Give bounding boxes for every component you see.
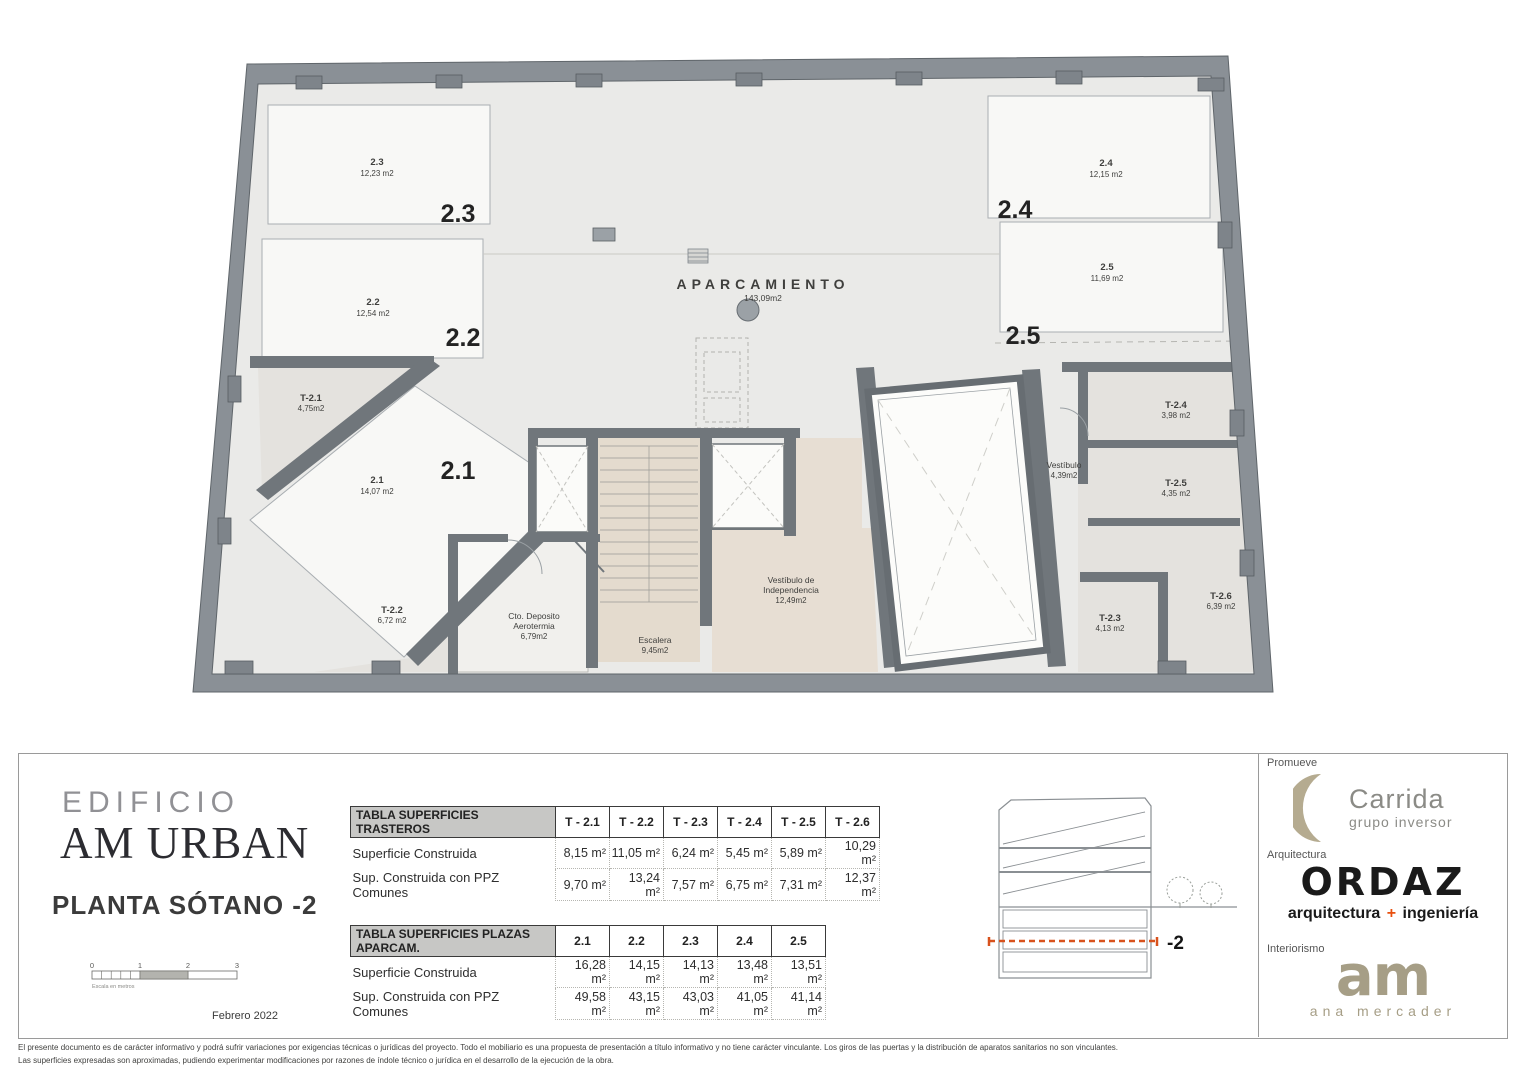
trastero-t25-area: 4,35 m2 [1162, 489, 1191, 498]
project-name-line1: EDIFICIO [62, 786, 240, 820]
level-line [989, 937, 1157, 946]
plus-icon: + [1385, 905, 1398, 922]
cell: 13,24 m² [610, 869, 664, 901]
col-header: 2.4 [718, 926, 772, 957]
credits-panel: Promueve Carrida grupo inversor Arquitec… [1258, 753, 1507, 1037]
space-2-2-id: 2.2 [366, 297, 379, 308]
table-title: TABLA SUPERFICIES PLAZAS APARCAM. [351, 926, 556, 957]
cell: 9,70 m² [556, 869, 610, 901]
trees-icon [1167, 877, 1222, 908]
cell: 7,57 m² [664, 869, 718, 901]
col-header: 2.1 [556, 926, 610, 957]
aparcamiento-area: 143,09m2 [744, 293, 782, 303]
trastero-t21-area: 4,75m2 [298, 404, 325, 413]
scale-tick-2: 2 [186, 961, 190, 970]
disclaimer-line2: Las superficies expresadas son aproximad… [18, 1055, 1510, 1067]
table-row: Sup. Construida con PPZ Comunes 49,58 m²… [351, 988, 826, 1020]
cell: 12,37 m² [826, 869, 880, 901]
col-header: T - 2.3 [664, 807, 718, 838]
table-title: TABLA SUPERFICIES TRASTEROS [351, 807, 556, 838]
date-label: Febrero 2022 [212, 1010, 278, 1022]
trastero-t25-id: T-2.5 [1165, 478, 1187, 489]
table-row: Superficie Construida 8,15 m² 11,05 m² 6… [351, 838, 880, 869]
ordaz-subtitle-pre: arquitectura [1288, 905, 1385, 922]
cell: 13,51 m² [772, 957, 826, 988]
trastero-t26-id: T-2.6 [1210, 591, 1232, 602]
space-2-5-area: 11,69 m2 [1091, 274, 1124, 283]
am-logo: am ana mercader [1259, 953, 1507, 1019]
hatched-column [688, 249, 708, 263]
table-superficies-trasteros: TABLA SUPERFICIES TRASTEROS T - 2.1 T - … [350, 806, 880, 901]
room-cto-area: 6,79m2 [521, 632, 548, 641]
scale-tick-3: 3 [235, 961, 239, 970]
table-header-row: TABLA SUPERFICIES PLAZAS APARCAM. 2.1 2.… [351, 926, 826, 957]
big-2-1: 2.1 [441, 457, 476, 485]
space-2-1-area: 14,07 m2 [360, 487, 394, 496]
col-header: 2.2 [610, 926, 664, 957]
space-2-2-area: 12,54 m2 [356, 309, 390, 318]
cell: 41,14 m² [772, 988, 826, 1020]
disclaimer-line1: El presente documento es de carácter inf… [18, 1042, 1510, 1054]
plan-title: PLANTA SÓTANO -2 [52, 890, 317, 921]
big-2-3: 2.3 [441, 200, 476, 228]
ordaz-name: ORDAZ [1259, 863, 1507, 901]
room-vestibulo: Vestíbulo [1047, 460, 1082, 470]
cell: 11,05 m² [610, 838, 664, 869]
row-label: Superficie Construida [351, 838, 556, 869]
col-header: T - 2.4 [718, 807, 772, 838]
scale-tick-1: 1 [138, 961, 142, 970]
section-building [999, 798, 1237, 978]
page: APARCAMIENTO 143,09m2 2.1 14,07 m2 2.2 1… [0, 0, 1525, 1080]
cell: 43,03 m² [664, 988, 718, 1020]
space-2-3-area: 12,23 m2 [360, 169, 394, 178]
big-2-4: 2.4 [998, 196, 1033, 224]
table-row: Superficie Construida 16,28 m² 14,15 m² … [351, 957, 826, 988]
carrida-crescent-icon [1293, 771, 1341, 845]
table-row: Sup. Construida con PPZ Comunes 9,70 m² … [351, 869, 880, 901]
role-promueve: Promueve [1267, 757, 1317, 769]
table-superficies-plazas: TABLA SUPERFICIES PLAZAS APARCAM. 2.1 2.… [350, 925, 826, 1020]
col-header: T - 2.6 [826, 807, 880, 838]
trastero-t26-area: 6,39 m2 [1207, 602, 1236, 611]
cell: 14,15 m² [610, 957, 664, 988]
ordaz-subtitle-post: ingeniería [1398, 905, 1478, 922]
scale-tick-0: 0 [90, 961, 94, 970]
col-header: T - 2.2 [610, 807, 664, 838]
room-vestibulo-ind-line2: Independencia [763, 585, 819, 595]
ordaz-subtitle: arquitectura + ingeniería [1259, 905, 1507, 923]
space-2-1-id: 2.1 [370, 475, 384, 486]
trastero-t23-id: T-2.3 [1099, 613, 1121, 624]
trastero-t24-id: T-2.4 [1165, 400, 1187, 411]
col-header: 2.3 [664, 926, 718, 957]
cell: 5,89 m² [772, 838, 826, 869]
room-cto-line2: Aerotermia [513, 621, 555, 631]
cell: 16,28 m² [556, 957, 610, 988]
row-label: Superficie Construida [351, 957, 556, 988]
floor-plan: APARCAMIENTO 143,09m2 2.1 14,07 m2 2.2 1… [0, 0, 1525, 752]
cell: 10,29 m² [826, 838, 880, 869]
room-vestibulo-area: 4,39m2 [1051, 471, 1078, 480]
cell: 5,45 m² [718, 838, 772, 869]
col-header: T - 2.5 [772, 807, 826, 838]
space-2-4-area: 12,15 m2 [1089, 170, 1123, 179]
trastero-t22-area: 6,72 m2 [378, 616, 407, 625]
room-escalera: Escalera [638, 635, 671, 645]
cell: 6,75 m² [718, 869, 772, 901]
big-2-5: 2.5 [1006, 322, 1041, 350]
building-section-diagram: -2 [975, 790, 1245, 1020]
trastero-t21-id: T-2.1 [300, 393, 322, 404]
project-name-line2: AM URBAN [60, 817, 309, 869]
row-label: Sup. Construida con PPZ Comunes [351, 869, 556, 901]
col-header: 2.5 [772, 926, 826, 957]
am-name: am [1259, 953, 1507, 1001]
level-label: -2 [1167, 933, 1184, 954]
room-vestibulo-ind-line1: Vestíbulo de [768, 575, 815, 585]
col-header: T - 2.1 [556, 807, 610, 838]
room-vestibulo-ind-area: 12,49m2 [775, 596, 807, 605]
cell: 6,24 m² [664, 838, 718, 869]
scale-bar: 0 1 2 3 Escala en metros [80, 950, 340, 994]
trastero-t22-id: T-2.2 [381, 605, 403, 616]
trastero-t24-area: 3,98 m2 [1162, 411, 1191, 420]
space-2-4-id: 2.4 [1099, 158, 1113, 169]
carrida-logo: Carrida grupo inversor [1293, 771, 1453, 845]
space-2-5-id: 2.5 [1100, 262, 1114, 273]
cell: 14,13 m² [664, 957, 718, 988]
space-2-3-id: 2.3 [370, 157, 383, 168]
cell: 49,58 m² [556, 988, 610, 1020]
row-label: Sup. Construida con PPZ Comunes [351, 988, 556, 1020]
trastero-t23-area: 4,13 m2 [1096, 624, 1125, 633]
cell: 13,48 m² [718, 957, 772, 988]
cell: 43,15 m² [610, 988, 664, 1020]
big-2-2: 2.2 [446, 324, 481, 352]
table-header-row: TABLA SUPERFICIES TRASTEROS T - 2.1 T - … [351, 807, 880, 838]
cell: 8,15 m² [556, 838, 610, 869]
ordaz-logo: ORDAZ arquitectura + ingeniería [1259, 863, 1507, 923]
carrida-subtitle: grupo inversor [1349, 814, 1453, 830]
scale-caption: Escala en metros [92, 984, 135, 990]
room-cto-line1: Cto. Deposito [508, 611, 560, 621]
carrida-name: Carrida [1349, 786, 1453, 813]
aparcamiento-label: APARCAMIENTO [676, 276, 849, 292]
cell: 7,31 m² [772, 869, 826, 901]
am-subtitle: ana mercader [1259, 1003, 1507, 1019]
car-lift [868, 378, 1047, 668]
room-escalera-area: 9,45m2 [642, 646, 669, 655]
cell: 41,05 m² [718, 988, 772, 1020]
